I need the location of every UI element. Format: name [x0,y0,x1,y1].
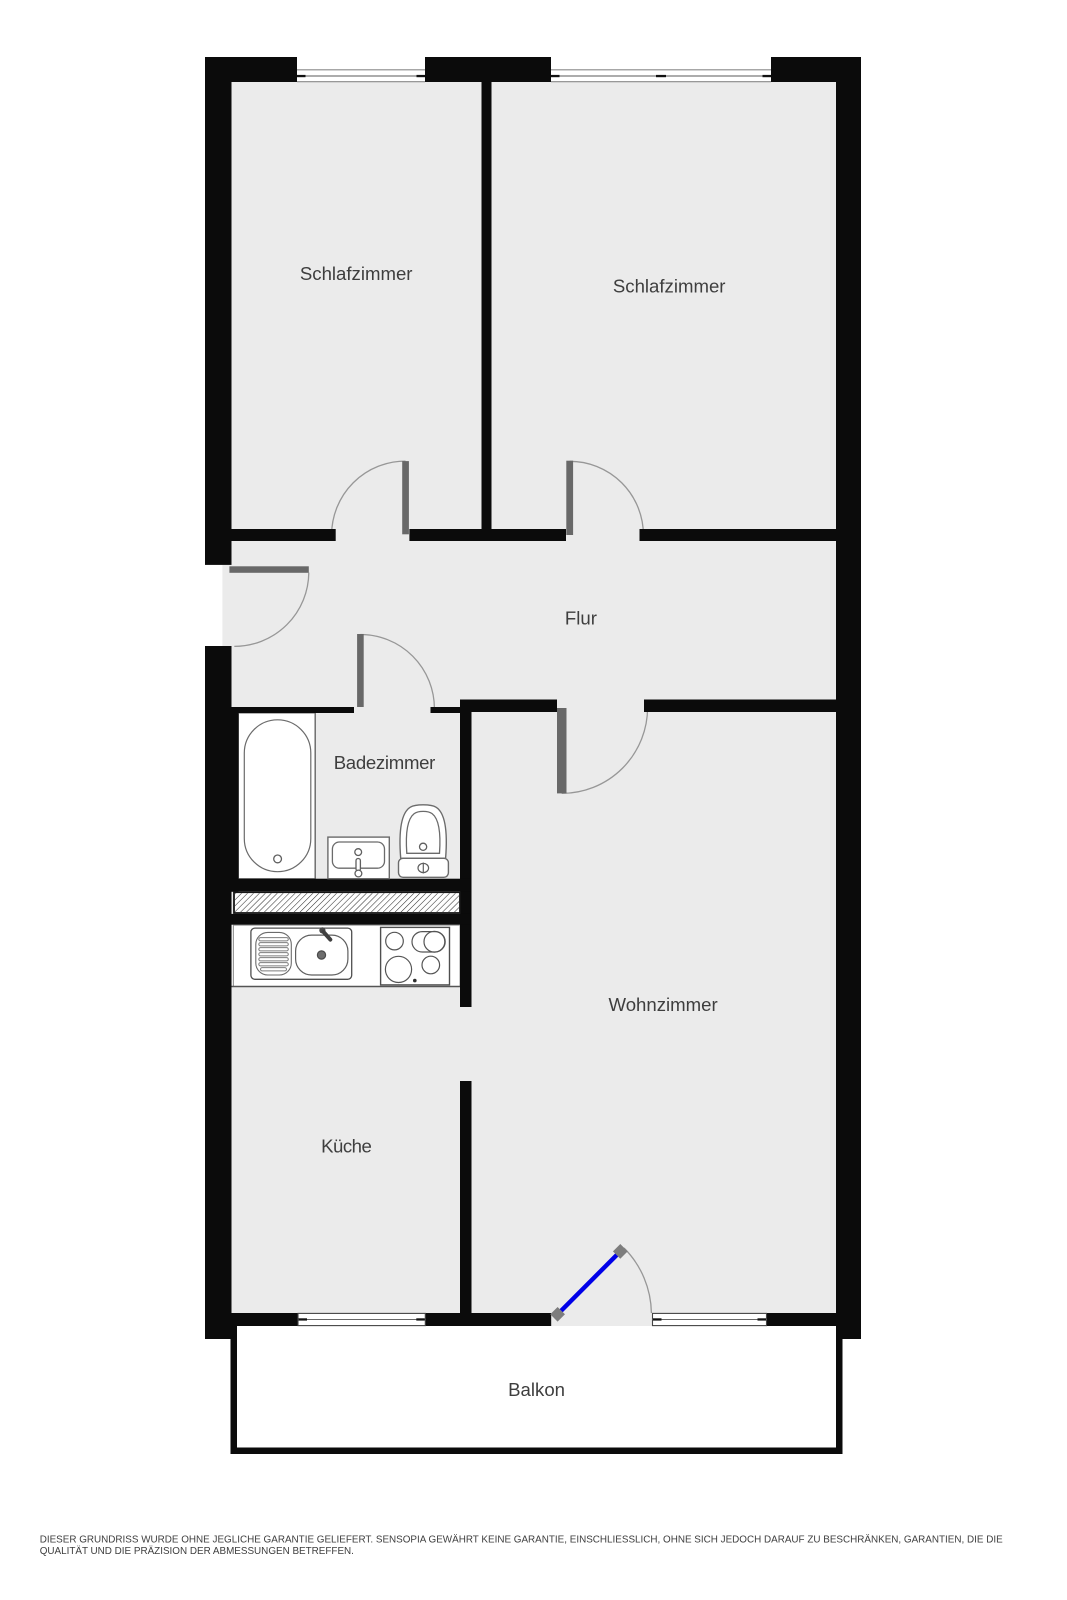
svg-text:Schlafzimmer: Schlafzimmer [613,276,726,297]
svg-text:Schlafzimmer: Schlafzimmer [300,263,413,284]
svg-text:Badezimmer: Badezimmer [334,752,435,773]
svg-text:QUALITÄT UND DIE PRÄZISION DER: QUALITÄT UND DIE PRÄZISION DER ABMESSUNG… [40,1546,354,1557]
svg-text:Balkon: Balkon [508,1379,565,1400]
svg-text:DIESER GRUNDRISS WURDE OHNE JE: DIESER GRUNDRISS WURDE OHNE JEGLICHE GAR… [40,1534,1003,1545]
svg-text:Wohnzimmer: Wohnzimmer [609,994,718,1015]
svg-text:Flur: Flur [565,608,597,629]
svg-text:Küche: Küche [321,1136,371,1157]
